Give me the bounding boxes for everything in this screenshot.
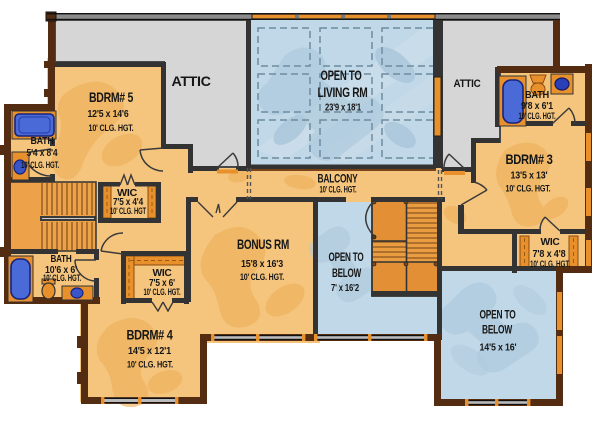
svg-text:10' CLG. HGT.: 10' CLG. HGT. (21, 160, 59, 170)
svg-text:10' CLG. HGT.: 10' CLG. HGT. (506, 184, 551, 194)
svg-text:14'5 x 16': 14'5 x 16' (480, 342, 517, 354)
svg-text:23'9 x 18'1: 23'9 x 18'1 (325, 102, 361, 114)
svg-text:OPEN TO: OPEN TO (329, 252, 364, 264)
svg-text:10' CLG. HGT: 10' CLG. HGT (110, 206, 146, 216)
svg-text:LIVING RM: LIVING RM (318, 84, 368, 100)
svg-text:5'4 x 8'4: 5'4 x 8'4 (27, 147, 58, 159)
svg-text:BDRM# 4: BDRM# 4 (127, 327, 173, 343)
svg-text:OPEN TO: OPEN TO (480, 310, 516, 322)
svg-text:10' CLG. HGT.: 10' CLG. HGT. (530, 259, 570, 269)
svg-text:10' CLG. HGT.: 10' CLG. HGT. (240, 272, 284, 282)
svg-text:WIC: WIC (541, 237, 560, 248)
svg-text:13'5 x 13': 13'5 x 13' (511, 170, 548, 182)
svg-text:12'5 x 14'6: 12'5 x 14'6 (88, 108, 129, 120)
svg-text:ATTIC: ATTIC (172, 73, 211, 89)
svg-text:10' CLG. HGT.: 10' CLG. HGT. (144, 287, 181, 297)
svg-text:ATTIC: ATTIC (454, 78, 481, 90)
svg-text:10' CLG. HGT.: 10' CLG. HGT. (127, 360, 173, 370)
svg-text:BATH: BATH (31, 136, 54, 147)
svg-text:BONUS RM: BONUS RM (237, 236, 289, 252)
svg-text:15'8 x 16'3: 15'8 x 16'3 (241, 258, 283, 270)
svg-text:BDRM# 3: BDRM# 3 (506, 151, 553, 167)
svg-text:10' CLG. HGT.: 10' CLG. HGT. (320, 185, 357, 195)
svg-text:10' CLG. HGT.: 10' CLG. HGT. (43, 273, 81, 283)
svg-text:BDRM# 5: BDRM# 5 (89, 89, 133, 105)
svg-text:7' x 16'2: 7' x 16'2 (331, 282, 359, 294)
svg-text:10' CLG. HGT.: 10' CLG. HGT. (89, 123, 134, 133)
svg-text:BELOW: BELOW (482, 325, 512, 337)
svg-text:14'5 x 12'1: 14'5 x 12'1 (128, 345, 171, 357)
svg-text:10' CLG. HGT.: 10' CLG. HGT. (519, 111, 556, 121)
svg-text:OPEN TO: OPEN TO (321, 67, 362, 83)
svg-text:BELOW: BELOW (332, 268, 361, 280)
